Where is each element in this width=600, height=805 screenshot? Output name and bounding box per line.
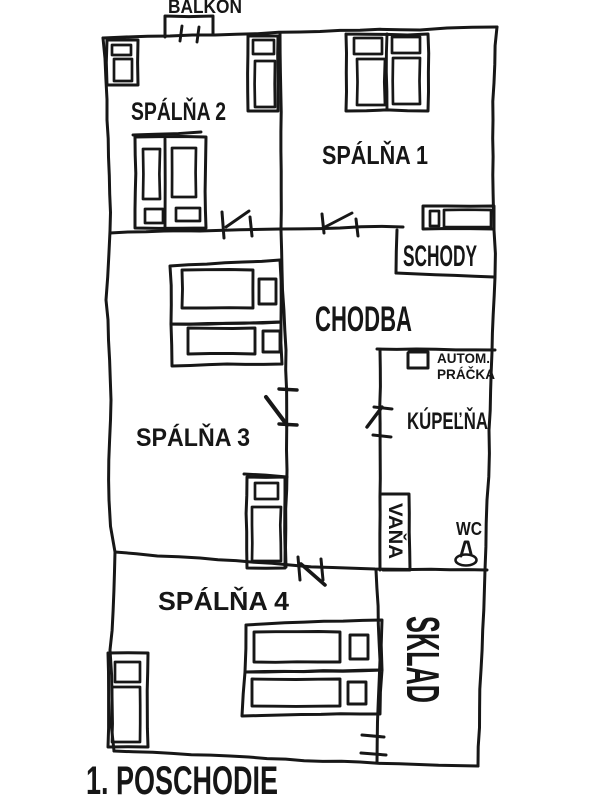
- svg-text:CHODBA: CHODBA: [315, 300, 412, 339]
- svg-text:WC: WC: [456, 519, 482, 539]
- svg-text:PRÁČKA: PRÁČKA: [437, 365, 495, 382]
- svg-text:KÚPEĽŇA: KÚPEĽŇA: [407, 407, 488, 435]
- svg-text:BALKÓN: BALKÓN: [168, 0, 242, 18]
- svg-text:SPÁLŇA 3: SPÁLŇA 3: [136, 422, 250, 452]
- svg-text:SCHODY: SCHODY: [403, 240, 477, 273]
- svg-text:1. POSCHODIE: 1. POSCHODIE: [86, 759, 278, 800]
- svg-text:AUTOM.: AUTOM.: [437, 350, 490, 366]
- svg-text:VAŇA: VAŇA: [384, 503, 406, 559]
- svg-text:SPÁLŇA 1: SPÁLŇA 1: [322, 140, 428, 170]
- svg-text:SKLAD: SKLAD: [397, 616, 449, 703]
- svg-text:SPÁLŇA 4: SPÁLŇA 4: [158, 586, 290, 616]
- svg-text:SPÁLŇA 2: SPÁLŇA 2: [131, 96, 226, 126]
